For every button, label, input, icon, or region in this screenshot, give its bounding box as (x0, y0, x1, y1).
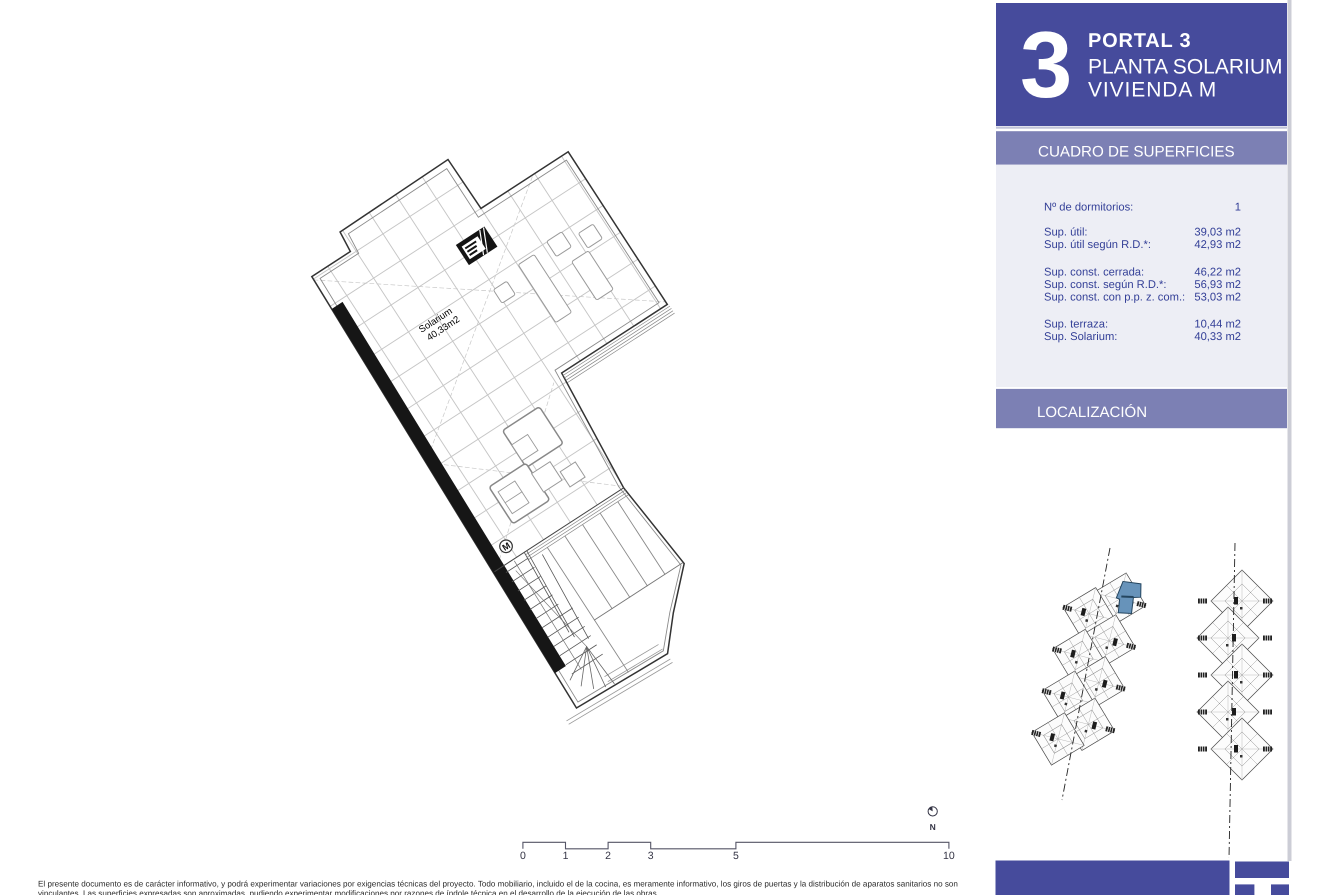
svg-text:Sup. const. con p.p. z. com.:: Sup. const. con p.p. z. com.: (1044, 292, 1185, 304)
svg-text:10,44 m2: 10,44 m2 (1194, 319, 1241, 331)
svg-text:53,03 m2: 53,03 m2 (1194, 292, 1241, 304)
svg-text:vinculantes. Las superficies e: vinculantes. Las superficies expresadas … (38, 889, 659, 895)
svg-text:1: 1 (563, 850, 569, 862)
svg-text:56,93 m2: 56,93 m2 (1194, 279, 1241, 291)
svg-text:Sup. útil según R.D.*:: Sup. útil según R.D.*: (1044, 239, 1151, 251)
svg-text:5: 5 (733, 850, 739, 862)
svg-text:1: 1 (1235, 201, 1241, 213)
svg-text:El presente documento es de ca: El presente documento es de carácter inf… (38, 880, 958, 889)
svg-text:N: N (930, 822, 936, 832)
svg-text:Sup. Solarium:: Sup. Solarium: (1044, 331, 1117, 343)
svg-text:CUADRO DE SUPERFICIES: CUADRO DE SUPERFICIES (1038, 144, 1235, 161)
svg-text:Sup. terraza:: Sup. terraza: (1044, 319, 1108, 331)
svg-text:2: 2 (605, 850, 611, 862)
svg-text:42,93 m2: 42,93 m2 (1194, 239, 1241, 251)
svg-text:Sup. const. cerrada:: Sup. const. cerrada: (1044, 267, 1144, 279)
svg-text:VIVIENDA M: VIVIENDA M (1088, 79, 1217, 102)
svg-text:3: 3 (1020, 12, 1072, 117)
svg-text:Nº de dormitorios:: Nº de dormitorios: (1044, 201, 1133, 213)
svg-text:39,03 m2: 39,03 m2 (1194, 227, 1241, 239)
svg-text:10: 10 (943, 850, 955, 862)
svg-text:46,22 m2: 46,22 m2 (1194, 267, 1241, 279)
svg-text:LOCALIZACIÓN: LOCALIZACIÓN (1037, 403, 1147, 421)
svg-text:Sup. const. según R.D.*:: Sup. const. según R.D.*: (1044, 279, 1167, 291)
svg-text:0: 0 (520, 850, 526, 862)
svg-text:40,33 m2: 40,33 m2 (1194, 331, 1241, 343)
svg-text:3: 3 (648, 850, 654, 862)
svg-text:Sup. útil:: Sup. útil: (1044, 227, 1088, 239)
svg-text:PLANTA SOLARIUM: PLANTA SOLARIUM (1088, 56, 1283, 79)
svg-text:PORTAL 3: PORTAL 3 (1088, 30, 1191, 52)
